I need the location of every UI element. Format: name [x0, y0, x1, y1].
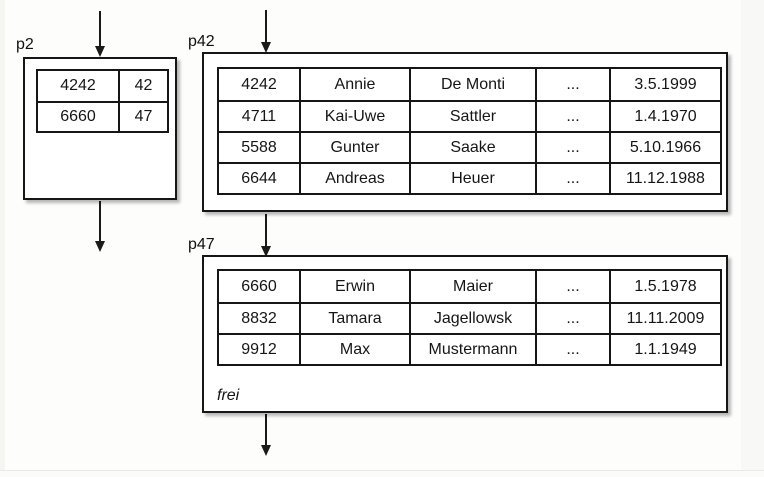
table-cell: ... — [537, 100, 611, 131]
table-cell: Andreas — [301, 162, 411, 193]
table-cell: Gunter — [301, 131, 411, 162]
table-cell: 42 — [120, 71, 167, 101]
table-cell: 6660 — [38, 101, 120, 131]
index-table-p2: 424242666047 — [36, 69, 169, 133]
index-pages-diagram: p2 p42 p47 424242666047 4242AnnieDe Mont… — [0, 0, 764, 477]
table-cell: 6644 — [219, 162, 301, 193]
table-cell: Max — [301, 333, 411, 364]
table-cell: Tamara — [301, 302, 411, 333]
table-cell: ... — [537, 131, 611, 162]
table-cell: ... — [537, 69, 611, 100]
table-cell: 5588 — [219, 131, 301, 162]
table-cell: ... — [537, 162, 611, 193]
table-cell: 11.11.2009 — [611, 302, 720, 333]
table-cell: 4242 — [38, 71, 120, 101]
arrow-out-of-p2 — [94, 201, 106, 252]
arrow-out-of-p47 — [260, 414, 272, 456]
free-space-label: frei — [217, 387, 239, 405]
arrow-line — [99, 11, 101, 46]
page-box-p47: 6660ErwinMaier...1.5.19788832TamaraJagel… — [202, 255, 728, 413]
table-cell: Mustermann — [411, 333, 537, 364]
table-cell: 3.5.1999 — [611, 69, 720, 100]
table-cell: 6660 — [219, 271, 301, 302]
arrow-head-icon — [95, 46, 105, 57]
table-cell: ... — [537, 271, 611, 302]
table-cell: Kai-Uwe — [301, 100, 411, 131]
record-table-p47: 6660ErwinMaier...1.5.19788832TamaraJagel… — [217, 269, 722, 366]
arrow-line — [265, 414, 267, 445]
table-cell: 11.12.1988 — [611, 162, 720, 193]
page-label-p42: p42 — [188, 34, 215, 50]
table-cell: Saake — [411, 131, 537, 162]
page-label-p2: p2 — [16, 37, 34, 53]
arrow-p42-to-p47 — [260, 214, 272, 257]
right-edge-strip — [741, 0, 764, 477]
page-box-p2: 424242666047 — [23, 57, 177, 200]
table-cell: 4711 — [219, 100, 301, 131]
table-cell: De Monti — [411, 69, 537, 100]
table-cell: 9912 — [219, 333, 301, 364]
table-cell: Annie — [301, 69, 411, 100]
bottom-edge-line — [0, 470, 764, 477]
table-cell: Maier — [411, 271, 537, 302]
table-cell: 1.1.1949 — [611, 333, 720, 364]
table-cell: 5.10.1966 — [611, 131, 720, 162]
arrow-head-icon — [261, 445, 271, 456]
arrow-line — [265, 10, 267, 42]
table-cell: Erwin — [301, 271, 411, 302]
table-cell: 1.4.1970 — [611, 100, 720, 131]
arrow-line — [265, 214, 267, 246]
arrow-line — [99, 201, 101, 241]
arrow-head-icon — [95, 241, 105, 252]
table-cell: 1.5.1978 — [611, 271, 720, 302]
left-edge-strip — [0, 0, 5, 477]
table-cell: 47 — [120, 101, 167, 131]
table-cell: ... — [537, 302, 611, 333]
table-cell: ... — [537, 333, 611, 364]
page-label-p47: p47 — [188, 237, 215, 253]
table-cell: 4242 — [219, 69, 301, 100]
table-cell: 8832 — [219, 302, 301, 333]
table-cell: Jagellowsk — [411, 302, 537, 333]
record-table-p42: 4242AnnieDe Monti...3.5.19994711Kai-UweS… — [217, 67, 722, 195]
table-cell: Heuer — [411, 162, 537, 193]
table-cell: Sattler — [411, 100, 537, 131]
arrow-into-p2 — [94, 11, 106, 57]
page-box-p42: 4242AnnieDe Monti...3.5.19994711Kai-UweS… — [202, 52, 728, 212]
arrow-into-p42 — [260, 10, 272, 53]
